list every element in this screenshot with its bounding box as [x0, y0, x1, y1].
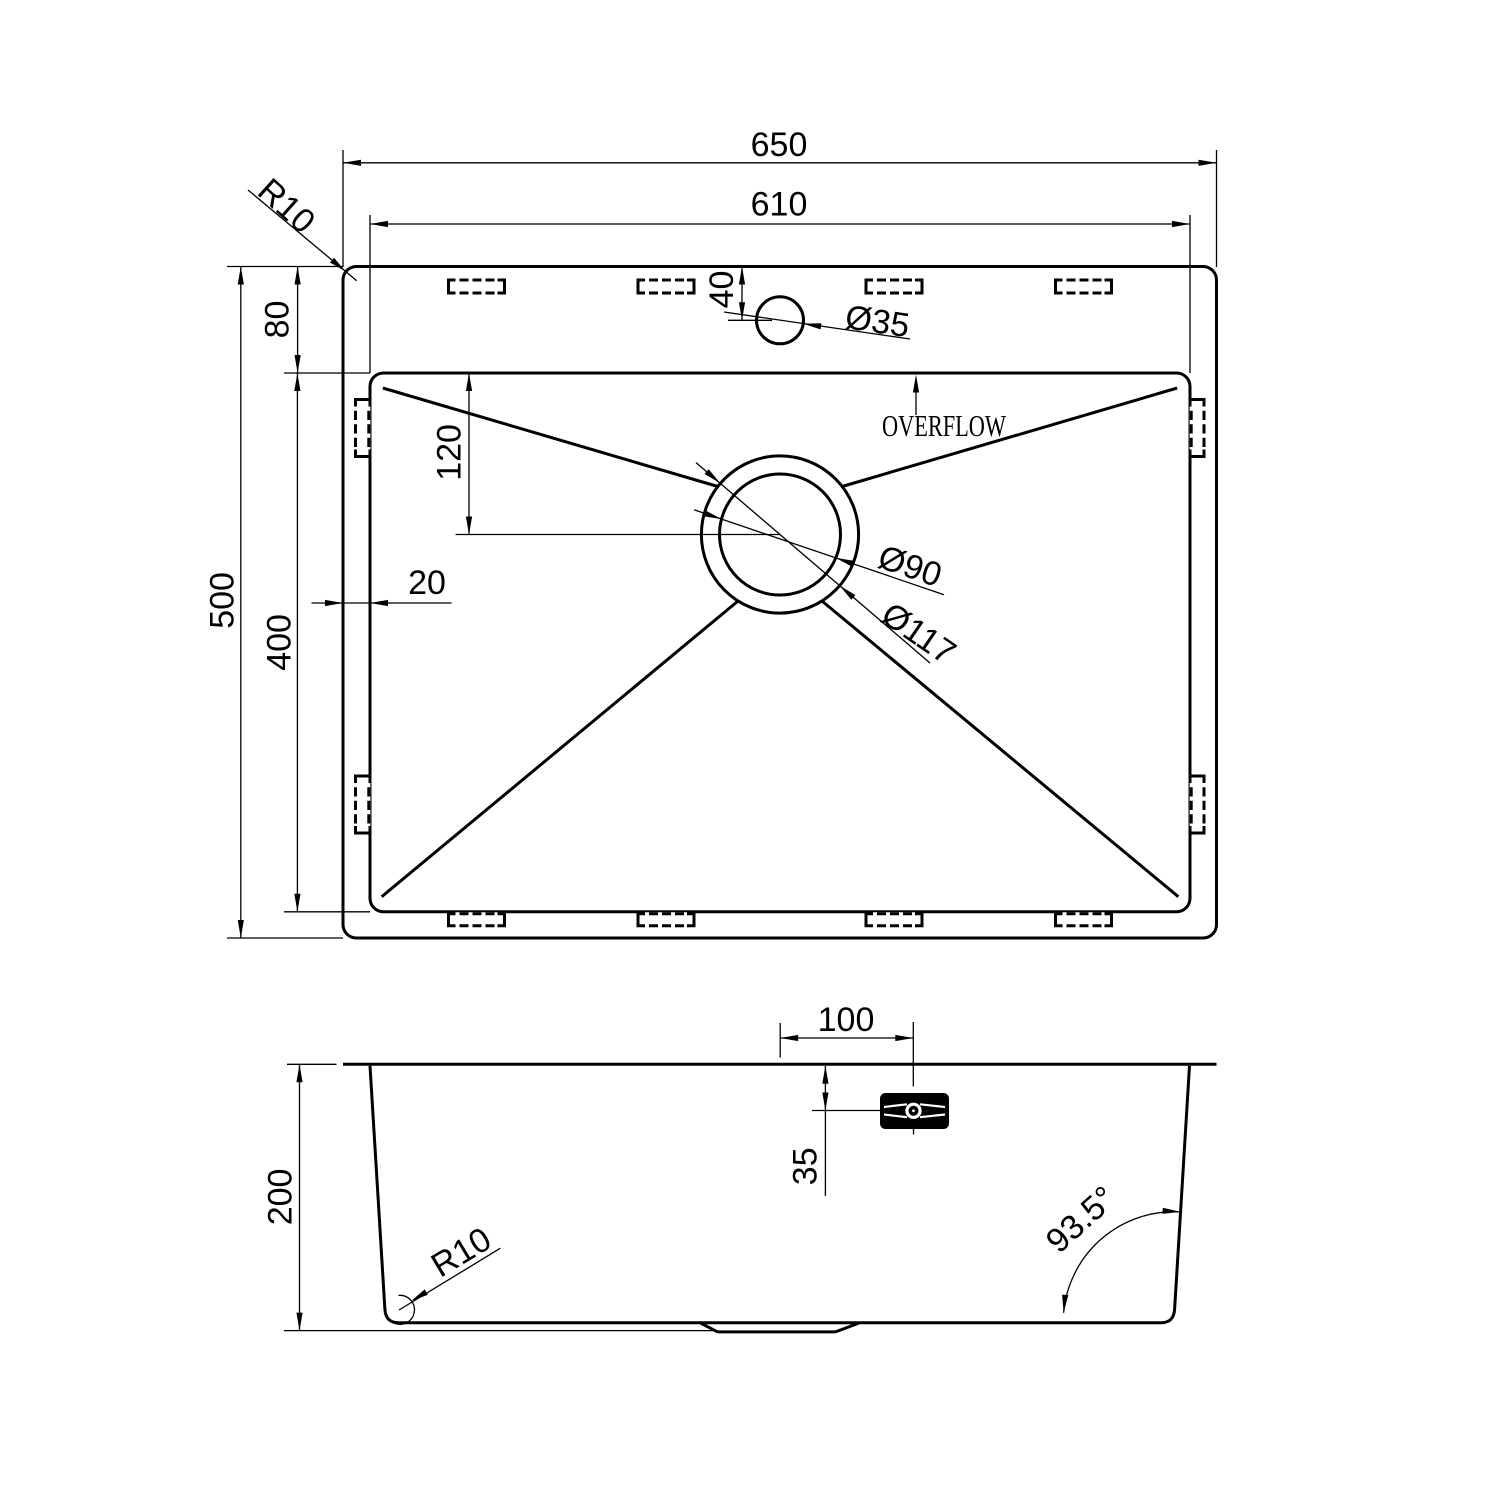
- svg-text:100: 100: [818, 1001, 875, 1039]
- svg-text:35: 35: [787, 1147, 825, 1185]
- svg-text:80: 80: [259, 301, 297, 339]
- svg-text:OVERFLOW: OVERFLOW: [882, 408, 1006, 442]
- svg-text:20: 20: [408, 564, 446, 602]
- svg-text:400: 400: [260, 614, 298, 671]
- svg-text:120: 120: [431, 424, 469, 481]
- svg-text:500: 500: [204, 572, 242, 629]
- svg-text:610: 610: [751, 186, 808, 224]
- svg-text:200: 200: [262, 1169, 300, 1226]
- svg-text:650: 650: [751, 126, 808, 164]
- svg-text:40: 40: [703, 271, 741, 309]
